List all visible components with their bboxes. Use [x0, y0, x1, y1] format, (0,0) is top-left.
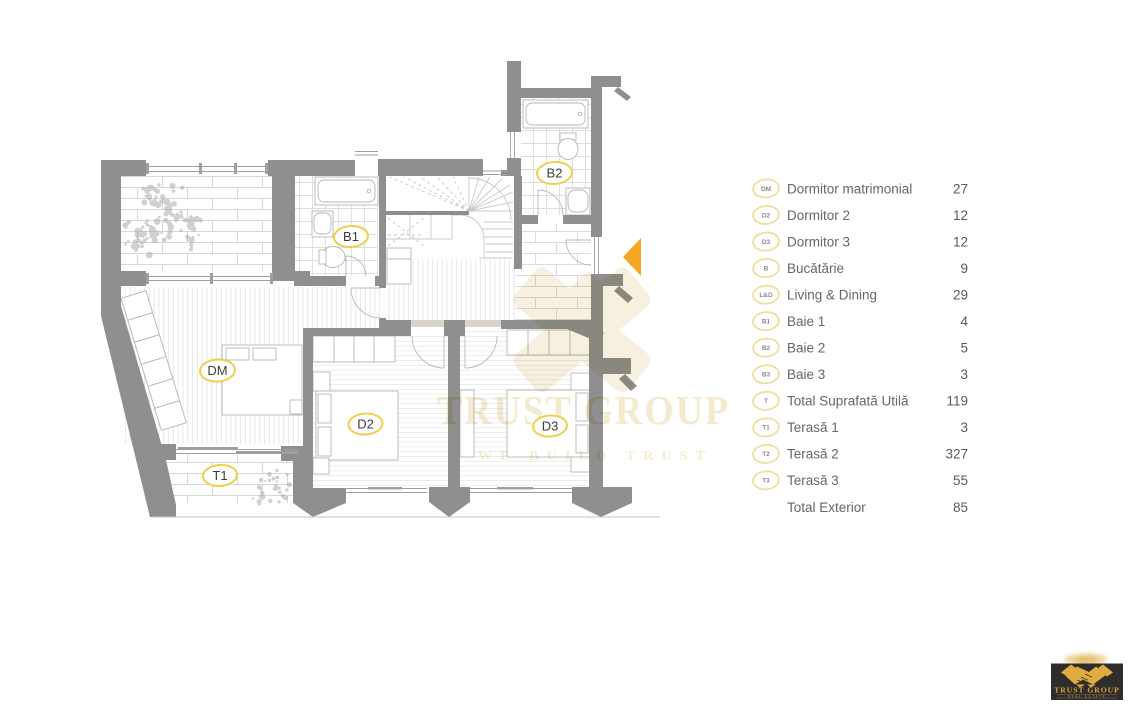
svg-text:9: 9 — [960, 261, 968, 276]
svg-text:T3: T3 — [762, 478, 770, 485]
svg-text:Terasă 3: Terasă 3 — [787, 473, 839, 488]
svg-text:4: 4 — [960, 314, 968, 329]
svg-text:Total Suprafată Utilă: Total Suprafată Utilă — [787, 394, 909, 409]
svg-text:REAL ESTATE: REAL ESTATE — [1068, 695, 1107, 699]
svg-text:Baie 2: Baie 2 — [787, 341, 825, 356]
svg-text:12: 12 — [953, 208, 968, 223]
svg-text:D3: D3 — [762, 239, 771, 246]
svg-text:3: 3 — [960, 420, 968, 435]
svg-text:T1: T1 — [212, 468, 227, 483]
svg-text:55: 55 — [953, 473, 968, 488]
svg-text:Living & Dining: Living & Dining — [787, 288, 877, 303]
svg-text:T1: T1 — [762, 425, 770, 432]
svg-text:B2: B2 — [547, 166, 563, 181]
svg-text:Terasă 1: Terasă 1 — [787, 420, 839, 435]
svg-text:Dormitor 3: Dormitor 3 — [787, 234, 850, 249]
svg-text:85: 85 — [953, 500, 968, 515]
svg-text:Baie 3: Baie 3 — [787, 367, 825, 382]
svg-text:12: 12 — [953, 234, 968, 249]
svg-text:Total Exterior: Total Exterior — [787, 500, 866, 515]
svg-text:L&D: L&D — [759, 292, 773, 299]
svg-text:T2: T2 — [762, 451, 770, 458]
svg-text:Baie 1: Baie 1 — [787, 314, 825, 329]
svg-text:D2: D2 — [762, 212, 771, 219]
svg-text:327: 327 — [945, 447, 968, 462]
svg-text:Terasă 2: Terasă 2 — [787, 447, 839, 462]
svg-text:B1: B1 — [762, 319, 771, 326]
svg-text:B: B — [764, 265, 769, 272]
svg-text:27: 27 — [953, 181, 968, 196]
svg-text:WE BUILD TRUST: WE BUILD TRUST — [478, 449, 713, 464]
svg-text:3: 3 — [960, 367, 968, 382]
svg-text:D2: D2 — [357, 417, 374, 432]
svg-text:B3: B3 — [762, 372, 771, 379]
svg-text:Dormitor 2: Dormitor 2 — [787, 208, 850, 223]
svg-text:29: 29 — [953, 288, 968, 303]
svg-text:Bucătărie: Bucătărie — [787, 261, 844, 276]
svg-text:TRUST GROUP: TRUST GROUP — [437, 387, 730, 433]
svg-text:B2: B2 — [762, 345, 771, 352]
svg-text:5: 5 — [960, 341, 968, 356]
svg-text:119: 119 — [946, 394, 968, 409]
svg-text:Dormitor matrimonial: Dormitor matrimonial — [787, 181, 912, 196]
svg-text:DM: DM — [207, 363, 227, 378]
svg-text:D3: D3 — [542, 419, 559, 434]
svg-text:DM: DM — [761, 186, 771, 193]
svg-text:T: T — [764, 398, 768, 405]
svg-text:B1: B1 — [343, 229, 359, 244]
svg-text:TRUST GROUP: TRUST GROUP — [1054, 686, 1120, 695]
